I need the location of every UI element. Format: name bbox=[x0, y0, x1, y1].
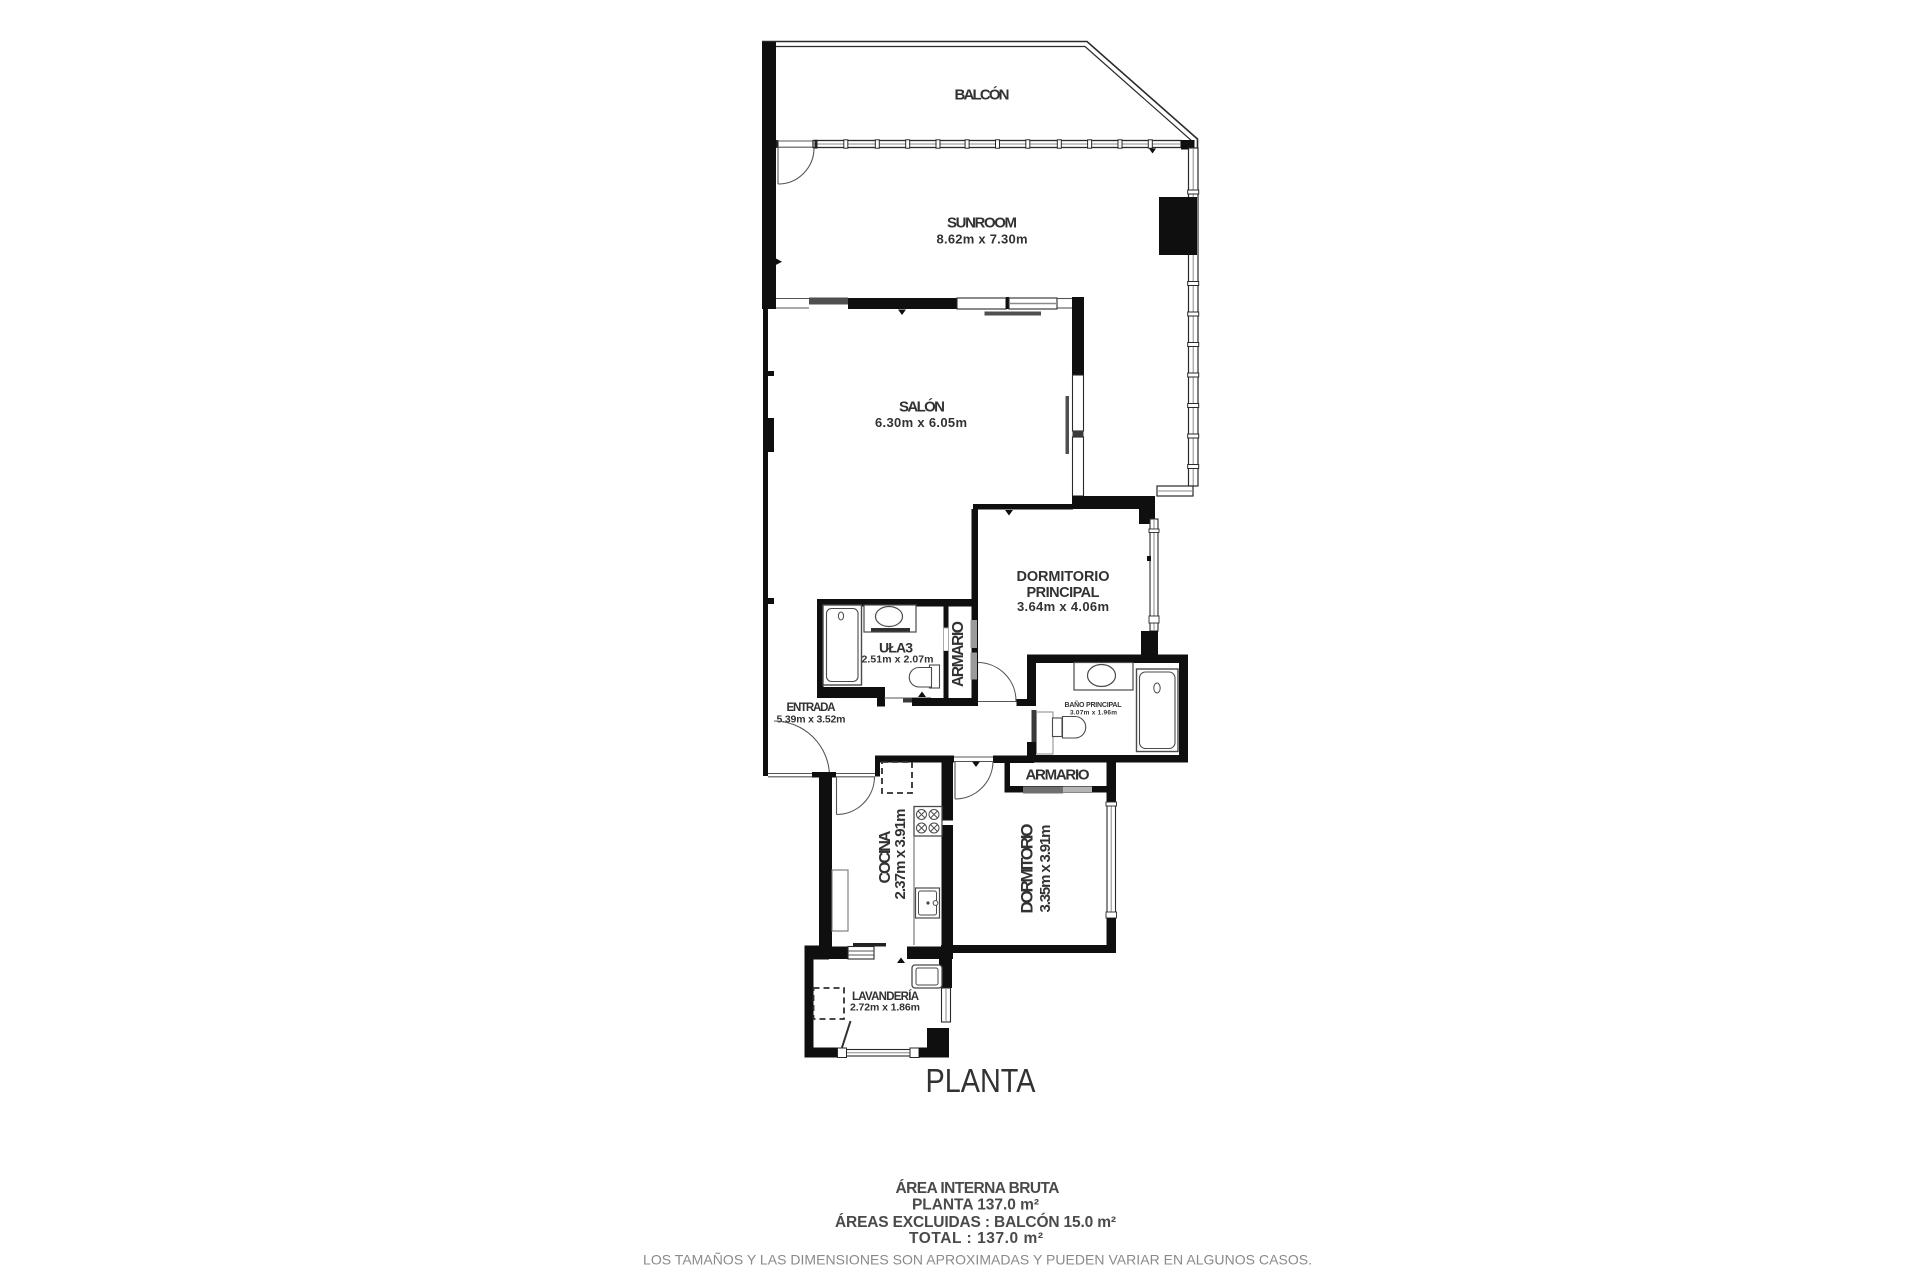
svg-text:BALCÓN: BALCÓN bbox=[955, 86, 1010, 104]
svg-text:SUNROOM: SUNROOM bbox=[947, 215, 1017, 232]
svg-text:ÁREAS EXCLUIDAS : BALCÓN 15.0: ÁREAS EXCLUIDAS : BALCÓN 15.0 m² bbox=[835, 1213, 1116, 1231]
svg-text:ÁREA INTERNA BRUTA: ÁREA INTERNA BRUTA bbox=[896, 1180, 1060, 1197]
svg-text:TOTAL : 137.0 m²: TOTAL : 137.0 m² bbox=[909, 1230, 1043, 1247]
svg-text:ARMARIO: ARMARIO bbox=[1026, 767, 1090, 784]
svg-text:DORMITORIO: DORMITORIO bbox=[1017, 569, 1110, 585]
svg-text:5.39m x 3.52m: 5.39m x 3.52m bbox=[777, 714, 846, 726]
svg-text:6.30m x 6.05m: 6.30m x 6.05m bbox=[875, 415, 967, 430]
svg-text:BAÑO PRINCIPAL: BAÑO PRINCIPAL bbox=[1065, 700, 1123, 709]
svg-text:2.51m x 2.07m: 2.51m x 2.07m bbox=[862, 654, 934, 666]
svg-text:2.37m x 3.91m: 2.37m x 3.91m bbox=[892, 809, 909, 900]
svg-text:DORMITORIO: DORMITORIO bbox=[1018, 824, 1037, 914]
svg-text:8.62m x 7.30m: 8.62m x 7.30m bbox=[937, 232, 1028, 247]
svg-text:LOS TAMAÑOS Y LAS DIMENSIONES: LOS TAMAÑOS Y LAS DIMENSIONES SON APROXI… bbox=[643, 1252, 1312, 1268]
svg-text:SALÓN: SALÓN bbox=[899, 398, 945, 416]
svg-text:ENTRADA: ENTRADA bbox=[787, 702, 836, 714]
svg-text:PLANTA: PLANTA bbox=[926, 1062, 1036, 1099]
svg-text:PLANTA 137.0 m²: PLANTA 137.0 m² bbox=[912, 1197, 1039, 1214]
svg-text:ARMARIO: ARMARIO bbox=[950, 621, 967, 687]
svg-text:2.72m x 1.86m: 2.72m x 1.86m bbox=[850, 1002, 920, 1014]
svg-text:3.64m x 4.06m: 3.64m x 4.06m bbox=[1017, 599, 1109, 614]
svg-text:3.35m x 3.91m: 3.35m x 3.91m bbox=[1037, 825, 1054, 913]
svg-text:3.07m x 1.96m: 3.07m x 1.96m bbox=[1070, 710, 1117, 717]
